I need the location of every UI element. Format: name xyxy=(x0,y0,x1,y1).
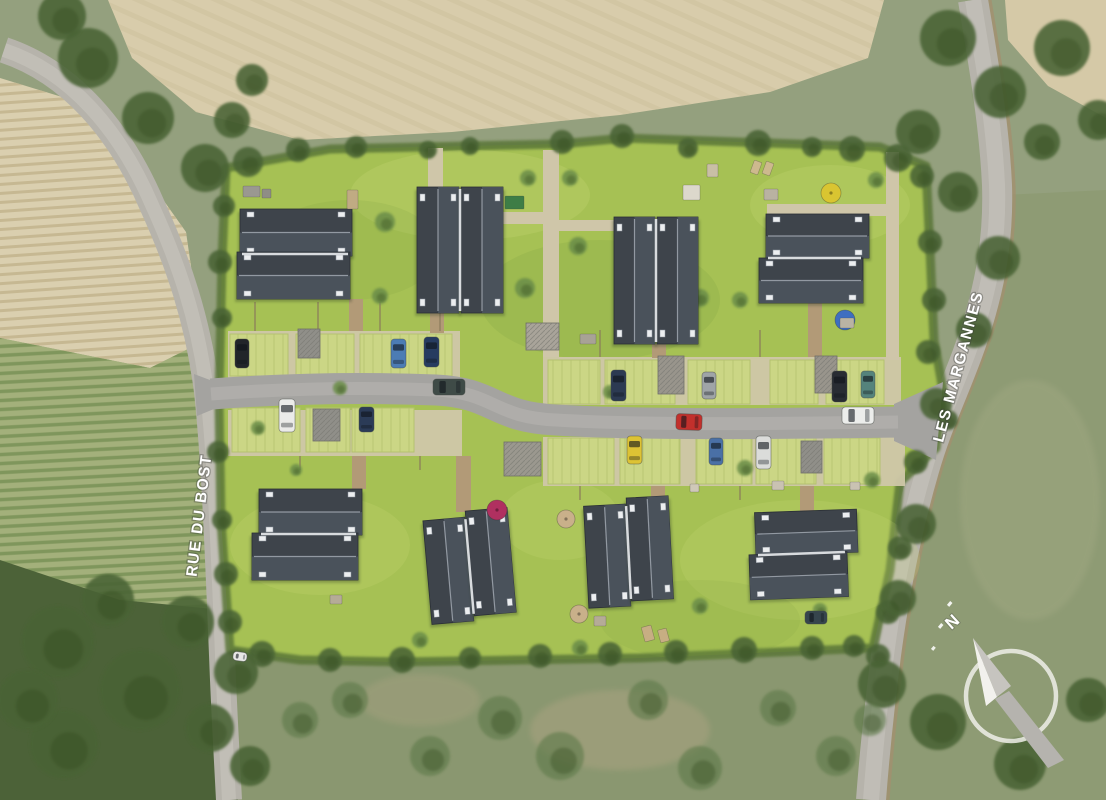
roof-chimney xyxy=(766,295,773,300)
tree-shade xyxy=(739,645,753,659)
tree-shade xyxy=(937,28,968,59)
car xyxy=(832,371,847,402)
tree-shade xyxy=(377,293,386,302)
parasol-pole xyxy=(564,517,567,520)
car xyxy=(424,337,439,367)
parking-bay-grid xyxy=(770,360,818,404)
tree-shade xyxy=(923,348,936,361)
car-windshield xyxy=(834,377,845,384)
roof-chimney xyxy=(622,592,627,599)
tree-shade xyxy=(828,749,850,771)
tree-shade xyxy=(807,644,820,657)
tree-shade xyxy=(909,124,933,148)
driveway xyxy=(456,456,471,512)
car xyxy=(676,414,703,431)
roof-chimney xyxy=(457,524,463,531)
house-cluster xyxy=(746,509,862,603)
car xyxy=(756,436,771,469)
roof-chimney xyxy=(244,255,251,260)
car-windshield xyxy=(704,377,714,383)
furniture-item xyxy=(262,189,271,198)
house-cluster xyxy=(420,507,519,627)
car xyxy=(627,436,642,464)
tree-shade xyxy=(557,138,570,151)
roof-chimney xyxy=(464,194,469,201)
roof-chimney xyxy=(618,511,623,518)
tree-shade xyxy=(293,714,313,734)
tree-shade xyxy=(227,664,251,688)
car-rear-window xyxy=(865,409,869,422)
car-windshield xyxy=(629,441,640,447)
tree-shade xyxy=(521,285,532,296)
tree-shade xyxy=(864,714,882,732)
car-windshield xyxy=(237,344,247,350)
car-rear-window xyxy=(393,360,404,364)
roof-chimney xyxy=(762,515,769,520)
roof-chimney xyxy=(757,591,764,596)
tree-shade xyxy=(424,147,434,157)
car-rear-window xyxy=(758,460,769,465)
car-rear-window xyxy=(613,392,624,396)
tree-shade xyxy=(872,676,898,702)
furniture-item xyxy=(505,196,524,209)
car xyxy=(709,438,723,465)
tree-shade xyxy=(742,465,751,474)
roof-slope xyxy=(438,187,459,313)
tree-shade xyxy=(255,426,263,434)
roof-chimney xyxy=(336,255,343,260)
car xyxy=(232,651,247,662)
roof-chimney xyxy=(344,536,351,541)
tree-shade xyxy=(640,693,662,715)
roof-chimney xyxy=(855,217,862,222)
driveway xyxy=(349,299,363,331)
car-rear-window xyxy=(695,416,699,428)
roof-chimney xyxy=(634,587,639,594)
roof-chimney xyxy=(426,527,432,534)
roof-chimney xyxy=(690,224,695,231)
furniture-item xyxy=(707,164,718,177)
tree-shade xyxy=(352,143,364,155)
tree-shade xyxy=(294,468,301,475)
roof-chimney xyxy=(773,250,780,255)
tree-shade xyxy=(697,603,706,612)
tree-shade xyxy=(753,138,767,152)
garden-shed-roof xyxy=(504,442,541,476)
car-rear-window xyxy=(863,390,873,394)
tree-shade xyxy=(124,676,168,720)
tree-shade xyxy=(76,48,109,81)
tree-shade xyxy=(215,258,228,271)
tree-shade xyxy=(1010,755,1039,784)
tree-shade xyxy=(178,613,207,642)
tree-shade xyxy=(220,202,232,214)
tree-shade xyxy=(891,592,911,612)
roof-chimney xyxy=(617,224,622,231)
tree-shade xyxy=(381,219,392,230)
site-plan-canvas: N RUE DU BOST LES MARGANNES xyxy=(0,0,1106,800)
car xyxy=(391,339,406,368)
car-rear-window xyxy=(456,381,460,393)
garden-shed-roof xyxy=(526,323,559,350)
tree-shade xyxy=(218,315,229,326)
tree-shade xyxy=(242,759,264,781)
roof-slope xyxy=(237,276,350,300)
roof-chimney xyxy=(247,212,254,217)
parasol-pole xyxy=(577,612,580,615)
roof-chimney xyxy=(843,512,850,517)
roof-slope xyxy=(759,281,863,304)
roof-chimney xyxy=(766,261,773,266)
house-cluster xyxy=(612,217,700,347)
roof-chimney xyxy=(434,610,440,617)
roof-chimney xyxy=(451,299,456,306)
car-rear-window xyxy=(426,359,437,363)
roof-chimney xyxy=(849,295,856,300)
roof-chimney xyxy=(834,589,841,594)
tree-shade xyxy=(343,694,363,714)
tree-shade xyxy=(52,8,78,34)
roof-chimney xyxy=(338,212,345,217)
footpath xyxy=(886,152,899,360)
furniture-item xyxy=(683,185,700,200)
car xyxy=(842,407,874,424)
tree-shade xyxy=(567,175,576,184)
car-body xyxy=(232,651,247,662)
tree-shade xyxy=(684,145,695,156)
car xyxy=(235,339,249,368)
roof-chimney xyxy=(507,598,513,605)
roof-chimney xyxy=(665,585,670,592)
tree-shade xyxy=(337,386,345,394)
roof-chimney xyxy=(348,527,355,532)
tree-shade xyxy=(225,114,245,134)
furniture-item xyxy=(330,595,342,604)
roof-chimney xyxy=(495,194,500,201)
parasol-pole xyxy=(495,508,498,511)
garden-shed-roof xyxy=(313,409,340,441)
furniture-item xyxy=(594,616,606,626)
roof-slope xyxy=(259,512,362,535)
roof-chimney xyxy=(336,291,343,296)
tree-shade xyxy=(929,296,942,309)
tree-shade xyxy=(892,153,907,168)
tree-shade xyxy=(1079,692,1103,716)
tree-shade xyxy=(850,642,862,654)
roof-chimney xyxy=(464,299,469,306)
scrub-patch xyxy=(360,674,480,726)
tree-shade xyxy=(895,544,908,557)
tree-shade xyxy=(525,175,534,184)
roof-chimney xyxy=(587,513,592,520)
tree-shade xyxy=(242,157,259,174)
roof-chimney xyxy=(690,330,695,337)
roof-chimney xyxy=(495,299,500,306)
car-rear-window xyxy=(821,613,824,622)
roof-chimney xyxy=(660,224,665,231)
tree-shade xyxy=(16,690,49,723)
roof-chimney xyxy=(259,572,266,577)
tree-shade xyxy=(950,185,972,207)
roof-chimney xyxy=(591,594,596,601)
house-cluster xyxy=(235,209,354,302)
driveway xyxy=(808,303,822,357)
tree-shade xyxy=(257,649,271,663)
driveway xyxy=(800,486,814,511)
house-cluster xyxy=(757,214,871,306)
car xyxy=(702,372,716,399)
driveway xyxy=(352,456,366,489)
furniture-item xyxy=(840,318,854,328)
car-windshield xyxy=(393,344,404,350)
tree-shade xyxy=(1035,136,1055,156)
roof-chimney xyxy=(451,194,456,201)
tree-shade xyxy=(397,655,411,669)
car-windshield xyxy=(758,442,769,449)
roof-chimney xyxy=(630,505,635,512)
tree-shade xyxy=(325,656,338,669)
tree-shade xyxy=(44,629,84,669)
furniture-item xyxy=(347,190,358,209)
tree-shade xyxy=(577,645,586,654)
roof-chimney xyxy=(465,607,471,614)
house-cluster xyxy=(581,496,676,612)
roof-chimney xyxy=(756,557,763,562)
field-patch xyxy=(960,380,1100,620)
tree-shade xyxy=(550,748,576,774)
furniture-item xyxy=(580,334,596,344)
car-rear-window xyxy=(629,456,640,460)
car-windshield xyxy=(361,412,372,418)
roof-chimney xyxy=(266,492,273,497)
tree-shade xyxy=(417,637,426,646)
roof-chimney xyxy=(855,250,862,255)
garden-shed-roof xyxy=(658,356,684,394)
roof-slope xyxy=(766,236,869,258)
car-windshield xyxy=(281,405,293,412)
car xyxy=(279,399,295,432)
car-windshield xyxy=(711,443,721,449)
tree-shade xyxy=(671,648,684,661)
car-windshield xyxy=(426,342,437,349)
garden-shed-roof xyxy=(801,441,822,473)
car-rear-window xyxy=(834,393,845,397)
roof-chimney xyxy=(244,291,251,296)
roof-chimney xyxy=(348,492,355,497)
tree-shade xyxy=(422,749,444,771)
tree-shade xyxy=(466,654,478,666)
parking-bay-grid xyxy=(548,360,600,404)
tree-shade xyxy=(574,243,584,253)
tree-shade xyxy=(466,143,476,153)
roof-chimney xyxy=(849,261,856,266)
tree-shade xyxy=(221,570,234,583)
tree-shade xyxy=(771,702,791,722)
tree-shade xyxy=(990,83,1019,112)
car-windshield xyxy=(863,376,873,382)
roof-chimney xyxy=(476,601,482,608)
tree-shade xyxy=(617,132,630,145)
roof-chimney xyxy=(660,330,665,337)
tree-shade xyxy=(491,710,515,734)
car xyxy=(433,379,465,395)
car-windshield xyxy=(848,409,854,422)
tree-shade xyxy=(1051,38,1082,69)
roof-chimney xyxy=(763,547,770,552)
roof-chimney xyxy=(266,527,273,532)
roof-chimney xyxy=(844,544,851,549)
tree-shade xyxy=(808,144,819,155)
parasol-pole xyxy=(829,191,832,194)
car-rear-window xyxy=(711,457,721,461)
tree-shade xyxy=(605,650,618,663)
car xyxy=(359,407,374,432)
tree-shade xyxy=(214,448,226,460)
furniture-item xyxy=(243,186,260,197)
car-windshield xyxy=(681,416,687,428)
garden-shed-roof xyxy=(298,329,320,358)
roof-chimney xyxy=(833,555,840,560)
tree-shade xyxy=(911,458,924,471)
footpath xyxy=(500,212,544,224)
roof-chimney xyxy=(420,299,425,306)
roof-slope xyxy=(252,557,358,581)
tree-shade xyxy=(908,517,930,539)
roof-chimney xyxy=(660,503,665,510)
parking-bay-grid xyxy=(548,438,614,484)
tree-shade xyxy=(927,712,958,743)
parking-bay-grid xyxy=(688,360,750,404)
tree-shade xyxy=(225,618,238,631)
roof-slope xyxy=(678,217,699,344)
car-rear-window xyxy=(281,423,293,428)
tree-shade xyxy=(869,477,878,486)
car xyxy=(861,371,875,398)
furniture-item xyxy=(850,482,860,490)
tree-shade xyxy=(200,720,226,746)
aerial-site-plan: N RUE DU BOST LES MARGANNES xyxy=(0,0,1106,800)
tree-shade xyxy=(989,250,1013,274)
car xyxy=(611,370,626,401)
roof-chimney xyxy=(469,517,475,524)
car xyxy=(805,611,827,624)
furniture-item xyxy=(764,189,778,200)
furniture-item xyxy=(690,484,699,492)
tree-shade xyxy=(218,517,229,528)
tree-shade xyxy=(98,591,127,620)
roof-chimney xyxy=(773,217,780,222)
car-windshield xyxy=(439,381,445,393)
furniture-item xyxy=(772,481,784,490)
roof-chimney xyxy=(344,572,351,577)
tree-shade xyxy=(138,109,167,138)
roof-slope xyxy=(482,187,503,313)
tree-shade xyxy=(195,160,221,186)
car-windshield xyxy=(809,613,813,622)
tree-shade xyxy=(873,177,882,186)
tree-shade xyxy=(691,760,715,784)
car-windshield xyxy=(613,376,624,383)
tree-shade xyxy=(50,732,87,769)
house-cluster xyxy=(250,489,364,583)
tree-shade xyxy=(737,297,746,306)
car-rear-window xyxy=(361,425,372,429)
tree-shade xyxy=(917,172,930,185)
roof-chimney xyxy=(420,194,425,201)
house-cluster xyxy=(415,187,505,316)
roof-slope xyxy=(635,217,656,344)
car-rear-window xyxy=(237,360,247,364)
tree-shade xyxy=(246,74,264,92)
roof-chimney xyxy=(647,330,652,337)
roof-chimney xyxy=(647,224,652,231)
roof-chimney xyxy=(259,536,266,541)
roof-chimney xyxy=(617,330,622,337)
tree-shade xyxy=(535,652,548,665)
footpath xyxy=(557,220,615,231)
tree-shade xyxy=(293,146,306,159)
tree-shade xyxy=(925,238,938,251)
tree-shade xyxy=(847,144,861,158)
car-rear-window xyxy=(704,391,714,395)
